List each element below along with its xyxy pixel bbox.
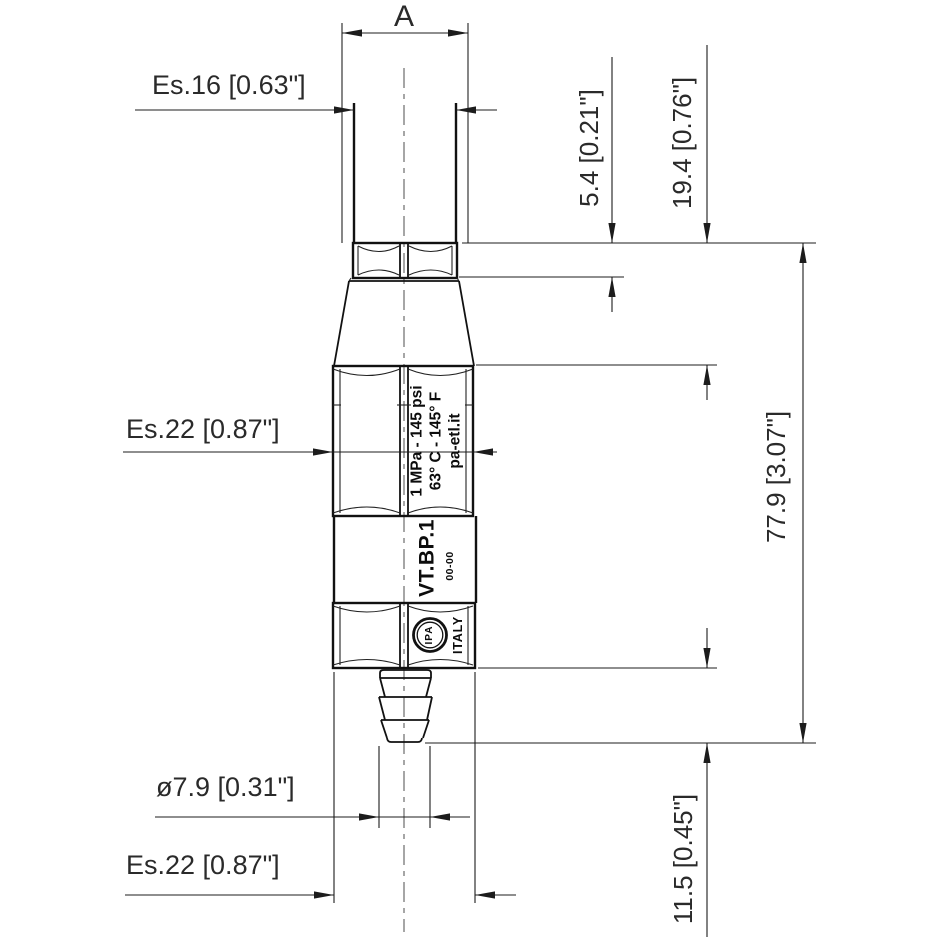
dim-label-barb-length: 11.5 [0.45"] (670, 794, 696, 924)
marking-model: VT.BP.1 (417, 519, 438, 597)
dim-es22-bottom-lines (125, 891, 516, 898)
right-reference-lines (425, 243, 816, 743)
dim-label-stem-hex: Es.16 [0.63"] (152, 72, 306, 99)
brand-logo-text: IPA (425, 626, 435, 645)
dim-label-nut-height: 5.4 [0.21"] (576, 89, 602, 207)
marking-date-code: 00-00 (445, 551, 456, 580)
hose-barb (379, 670, 432, 742)
dim-5-4-lines (608, 57, 615, 312)
marking-temperature: 63° C - 145° F (427, 385, 446, 496)
dim-label-a: A (394, 2, 414, 32)
dim-label-overall-length: 77.9 [3.07"] (763, 411, 789, 543)
dim-19-4-lines (703, 45, 710, 400)
marking-website: pa-etl.it (446, 385, 465, 496)
dim-label-upper-section: 19.4 [0.76"] (669, 77, 695, 209)
dim-7-9-lines (155, 813, 470, 820)
dim-es16-lines (135, 106, 497, 113)
marking-pressure: 1 MPa - 145 psi (408, 385, 427, 496)
dim-label-barb-diameter: ø7.9 [0.31"] (156, 774, 295, 801)
dim-label-bottom-hex: Es.22 [0.87"] (126, 852, 280, 879)
bottom-extension-lines (334, 672, 475, 903)
dim-77-9-lines (799, 243, 806, 743)
marking-country: ITALY (452, 616, 465, 654)
top-hex-nut (353, 243, 457, 278)
dim-11-5-lines (703, 628, 710, 937)
drawing-linework (0, 0, 938, 938)
dim-label-body-hex: Es.22 [0.87"] (126, 416, 280, 443)
technical-drawing-canvas: A Es.16 [0.63"] Es.22 [0.87"] ø7.9 [0.31… (0, 0, 938, 938)
thread-stem (342, 23, 468, 243)
body-markings: 1 MPa - 145 psi 63° C - 145° F pa-etl.it (408, 385, 465, 496)
